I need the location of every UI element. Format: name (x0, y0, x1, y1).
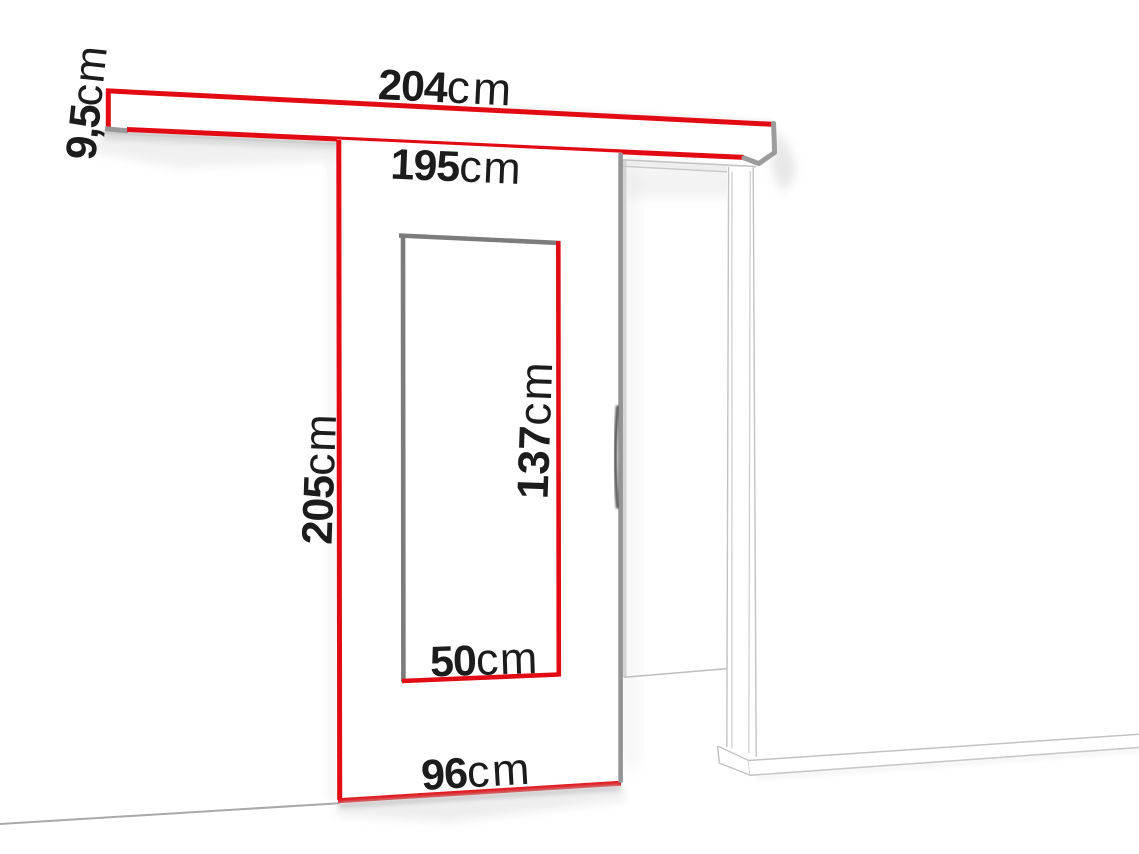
svg-text:96cm: 96cm (420, 743, 534, 800)
svg-text:50cm: 50cm (429, 632, 539, 686)
svg-text:195cm: 195cm (390, 138, 524, 194)
svg-text:205cm: 205cm (291, 412, 347, 545)
svg-text:137cm: 137cm (506, 359, 563, 499)
svg-text:204cm: 204cm (377, 57, 515, 116)
